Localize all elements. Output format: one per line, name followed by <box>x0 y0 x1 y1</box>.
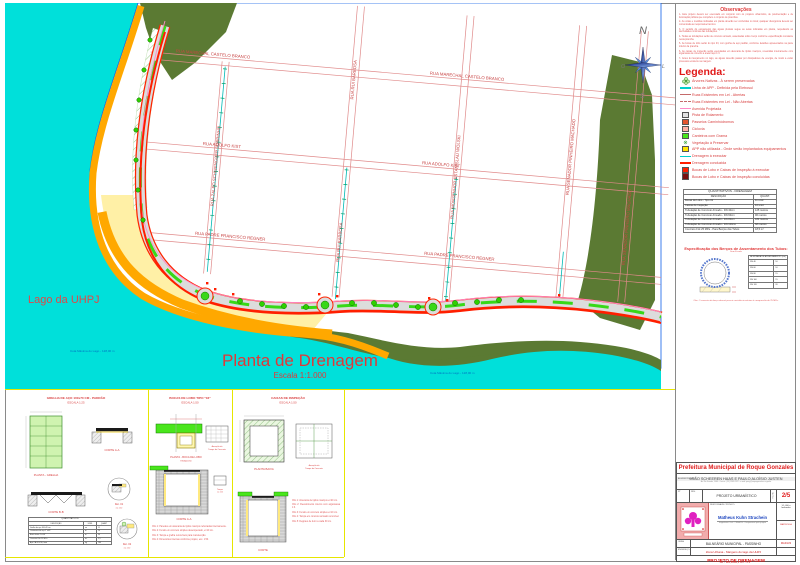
table-row: DN 12020 <box>749 283 788 289</box>
caixa-armacao-label1: Armação da <box>309 464 321 467</box>
legend-item: Linha de APP - Definida pela Eletrosul <box>679 85 793 92</box>
grelha-det1-esc: esc 1:10 <box>116 508 122 510</box>
caixa-armacao-drawing <box>296 424 332 458</box>
legend-label: Vegetação à Preservar <box>692 141 729 145</box>
bike-lane-swatch <box>682 126 688 132</box>
table-cell: Aço CA-50 Ø 8,0 mm <box>29 541 84 545</box>
caixa-plan-label: PLANTA BAIXA <box>254 467 274 471</box>
table-cell: 20 <box>774 283 788 289</box>
grass-swatch <box>682 133 688 139</box>
boca-title: BOCAS DE LOBO TIPO "03" <box>169 396 211 400</box>
grelha-det1-drawing <box>108 478 130 500</box>
pipe-section-drawing <box>686 255 744 297</box>
water-label: Cota Máxima do Lago - 128,00 m <box>430 371 475 375</box>
drainage-execute-swatch <box>680 156 691 157</box>
drawing-sheet: RUA MARECHAL CASTELO BRANCO RUA MARECHAL… <box>0 0 800 565</box>
legend-section: Legenda: Árvores Nativas - À serem prese… <box>679 66 793 180</box>
scale-column: 1:1.000 e Indicadas MATRÍCULA <box>777 503 795 539</box>
legend-label: Drenagem à executar <box>692 154 727 158</box>
details-div-3 <box>344 389 345 557</box>
grelha-corte-a-label: CORTE A-A <box>104 448 119 452</box>
quantities-table: QUANTITATIVOS - DRENAGEM DESCRIÇÃO QUANT… <box>683 189 777 233</box>
municipality-title: Prefeitura Municipal de Roque Gonzales <box>677 463 795 474</box>
boca-tampa-esc: esc 1:20 <box>217 492 223 494</box>
compass-north-label: N <box>639 25 647 37</box>
note-item: 5- As bocas de lobo serão do tipo 03, co… <box>679 43 793 49</box>
municipal-logo <box>677 503 709 539</box>
boca-armacao-label1: Armação da <box>212 445 224 448</box>
legend-item: Bocas de Lobo e Caixas de Inspeção à exe… <box>679 166 793 173</box>
project-type-box: PROJETO URBANÍSTICO <box>703 490 771 502</box>
admin-label: ADMINISTRAÇÃO: <box>678 478 695 480</box>
grelha-corte-a-drawing <box>92 428 132 443</box>
boca-plan-drawing <box>156 414 202 452</box>
legend-item: Bocas de Lobo e Caixas de Inspeção concl… <box>679 173 793 180</box>
lake-label: Lago da UHPJ <box>28 294 100 306</box>
boca-plan-esc: ESCALA 1/50 <box>181 460 192 463</box>
grelha-corte-b-drawing <box>28 492 85 506</box>
legend-label: Árvores Nativas - À serem preservadas <box>692 79 755 83</box>
table-cell: Concreto Fck 25 MPa - Para Berços dos Tu… <box>684 228 754 233</box>
inlet-execute-swatch <box>682 167 688 173</box>
boca-notes-list: Obs 1: Paredes em alvenaria de tijolos m… <box>152 526 228 542</box>
legend-label: Drenagem conduzida <box>692 161 726 165</box>
detail-panel-caixa: CAIXAS DE INSPEÇÃO ESCALA 1:50 PLANTA BA… <box>232 389 344 557</box>
resp-name: Matheus Kuhn Strachein <box>709 515 776 520</box>
water-label: Cota Máxima do Lago - 128,00 m <box>70 349 115 353</box>
legend-item: APP não utilizada - Onde serão implantad… <box>679 146 793 153</box>
legend-label: Ruas Existentes em Lei - Não Abertas <box>692 100 753 104</box>
legend-item: Avenida Projetada <box>679 105 793 112</box>
grelha-plan-label: PLANTA - GRELHA <box>34 473 59 477</box>
boca-corte-label: CORTE A-A <box>176 517 191 521</box>
caixa-notes-list: Obs 1: Alvenaria de tijolos maciços e=20… <box>292 500 340 524</box>
grelha-table-wrap: QUANTITATIVOS DESCRIÇÃO UNID QUANT Grelh… <box>28 517 112 545</box>
boca-armacao-drawing <box>206 426 228 442</box>
endereco-label: ENDEREÇO: <box>678 549 690 551</box>
grelha-rows: Grelha de aço 100x70 cmun11Cantoneira de… <box>29 526 112 545</box>
legend-item: Pista de Rolamento <box>679 112 793 119</box>
table-cell: 18,5 m³ <box>754 228 777 233</box>
obra-value: BALNEÁRIO MUNICIPAL - PASSINHO <box>691 542 776 546</box>
note-item: Obs 2: Revestimento interno com argamass… <box>292 504 340 510</box>
ref-box: Nº <box>677 490 690 502</box>
caixa-notes: Obs 1: Alvenaria de tijolos maciços e=20… <box>292 500 340 525</box>
drainage-map: RUA MARECHAL CASTELO BRANCO RUA MARECHAL… <box>5 3 675 389</box>
grelha-plan-drawing <box>26 412 62 468</box>
paper-size-label: A0 - 118,9x84,1 cm - 1:1 <box>676 560 794 564</box>
tree-icon <box>679 77 692 85</box>
table-row: Aço CA-50 Ø 8,0 mmkg180 <box>29 541 112 545</box>
map-subtitle: Escala 1:1.000 <box>274 371 327 380</box>
responsible-box: RESPONSÁVEL TÉCNICO: Matheus Kuhn Strach… <box>709 503 777 539</box>
bedding-subtitle: Sem Escala <box>678 251 794 253</box>
bedding-rows: DN 4010DN 6010DN 8015DN 10015DN 12020 <box>749 260 788 289</box>
legend-label: Bocas de Lobo e Caixas de Inspeção concl… <box>692 175 770 179</box>
note-item: Obs 4: Dimensões internas conforme proje… <box>152 539 228 542</box>
table-cell: kg <box>84 541 97 545</box>
grelha-det2-esc: esc 1:10 <box>124 548 130 550</box>
table-row: Concreto Fck 25 MPa - Para Berços dos Tu… <box>684 228 777 233</box>
endereco-value: Zona Urbana - Margens do lago da UHPJ <box>691 550 776 554</box>
legend-item: Ruas Existentes em Lei - Abertas <box>679 92 793 99</box>
caixa-scale: ESCALA 1:50 <box>279 401 297 405</box>
note-item: 2- As cotas e medidas indicadas em plant… <box>679 21 793 27</box>
note-item: Obs 1: Alvenaria de tijolos maciços e=20… <box>292 500 340 503</box>
grelha-corte-b-label: CORTE B-B <box>48 510 63 514</box>
caixa-title: CAIXAS DE INSPEÇÃO <box>271 395 305 400</box>
sheet-number-box: 2/5 <box>777 490 795 502</box>
note-item: Obs 5: Degraus de ferro a cada 30 cm. <box>292 521 340 524</box>
legend-label: Bocas de Lobo e Caixas de Inspeção à exe… <box>692 168 769 172</box>
resp-info: Engenheiro Civil - CREA/RS - Responsável… <box>709 522 776 524</box>
boca-plan-label: PLANTA - BOCA DE LOBO <box>170 455 202 459</box>
roadway-swatch <box>682 112 688 118</box>
observations-section: Observações 1- Este projeto deverá ser e… <box>679 7 793 65</box>
observations-title: Observações <box>679 7 793 13</box>
legend-item: Drenagem conduzida <box>679 160 793 167</box>
boca-armacao-label2: Tampa de Concreto <box>208 448 226 451</box>
legend-label: Pista de Rolamento <box>692 113 723 117</box>
obra-label: OBRA: <box>678 541 684 543</box>
note-item: Obs 4: Tampa em concreto armado removíve… <box>292 516 340 519</box>
legend-item: Drenagem à executar <box>679 153 793 160</box>
boca-scale: ESCALA 1:50 <box>181 401 199 405</box>
compass-star <box>625 47 661 83</box>
bedding-section: Especificação dos Berços de Assentamento… <box>678 246 794 302</box>
avenue-swatch <box>680 108 691 110</box>
legend-label: Avenida Projetada <box>692 107 721 111</box>
app-unused-swatch <box>682 146 688 152</box>
folha-box: FOLHA <box>771 490 777 502</box>
app-line-swatch <box>680 87 691 89</box>
quantities-rows: Bocas de Lobo - Tipo 0311 unidCaixas de … <box>684 199 777 232</box>
table-cell: DN 120 <box>749 283 774 289</box>
table-cell: 180 <box>97 541 112 545</box>
compass-east-label: L <box>662 64 665 70</box>
compass-west-label: O <box>621 64 626 70</box>
legend-label: APP não utilizada - Onde serão implantad… <box>692 147 786 151</box>
resp-label: RESPONSÁVEL TÉCNICO: <box>710 504 735 506</box>
legend-item: Árvores Nativas - À serem preservadas <box>679 78 793 85</box>
grelha-det2-drawing <box>117 519 137 539</box>
caixa-corte-label: CORTE <box>258 548 268 552</box>
quantities-section: QUANTITATIVOS - DRENAGEM DESCRIÇÃO QUANT… <box>683 189 777 233</box>
grelha-det2-label: Det. 02 <box>123 542 132 546</box>
caixa-armacao-label2: Tampa de Concreto <box>305 467 323 470</box>
open-street-swatch <box>680 94 691 95</box>
caixa-plan-drawing <box>240 416 284 462</box>
inlet-done-swatch <box>682 173 688 179</box>
rev-box: REV. <box>690 490 703 502</box>
details-bottom-line <box>5 557 344 558</box>
boca-corte-drawing <box>150 466 208 514</box>
legend-label: Canteiros com Grama <box>692 134 727 138</box>
note-item: 1- Este projeto deverá ser executado em … <box>679 14 793 20</box>
walkway-swatch <box>682 119 688 125</box>
boca-notes: Obs 1: Paredes em alvenaria de tijolos m… <box>152 526 228 544</box>
title-block: Prefeitura Municipal de Roque Gonzales A… <box>676 462 796 562</box>
legend-item: Canteiros com Grama <box>679 132 793 139</box>
legend-label: Ciclovia <box>692 127 705 131</box>
note-item: 3- O sentido do escoamento das águas plu… <box>679 29 793 35</box>
matricula-box: MATRÍCULA <box>777 521 795 539</box>
legend-item: ⊗ Vegetação à Preservar <box>679 139 793 146</box>
note-item: 4- Todas as tubulações serão de concreto… <box>679 36 793 42</box>
unopened-street-swatch <box>680 101 691 102</box>
legend-label: Passeios Caminhódromos <box>692 120 734 124</box>
note-item: Obs 3: Fundo em concreto simples e=10 cm… <box>292 512 340 515</box>
legend-item: Ruas Existentes em Lei - Não Abertas <box>679 98 793 105</box>
caixa-corte-drawing <box>238 492 288 542</box>
boca-tampa-drawing <box>214 476 226 485</box>
note-item: 7- Antes do lançamento no lago, as águas… <box>679 58 793 64</box>
scale-box: 1:1.000 e Indicadas <box>777 503 795 521</box>
grelha-title: GRELHA DE AÇO 100x70 CM - PADRÃO <box>47 395 106 400</box>
grelha-table: QUANTITATIVOS DESCRIÇÃO UNID QUANT Grelh… <box>28 517 112 545</box>
admin-contact: Av. Rio Grande, 1060 - Centro - (55) 358… <box>677 481 795 483</box>
bedding-table: ALMOFADA DE ASSENTAMENTO (cm) DN 4010DN … <box>748 255 788 289</box>
legend-label: Ruas Existentes em Lei - Abertas <box>692 93 745 97</box>
legend-item: Passeios Caminhódromos <box>679 119 793 126</box>
compass-south-label: S <box>640 93 645 100</box>
date-box: MAIO/23 <box>777 542 795 545</box>
preserved-vegetation-icon: ⊗ <box>679 140 692 146</box>
note-item: 6- As caixas de inspeção serão executada… <box>679 51 793 57</box>
compass-rose: N O L S <box>618 22 668 104</box>
note-item: Obs 2: Fundo em concreto simples desempe… <box>152 530 228 533</box>
legend-label: Linha de APP - Definida pela Eletrosul <box>692 86 753 90</box>
bedding-note: Obs: O concreto do berço deverá possuir … <box>678 300 794 302</box>
note-item: Obs 1: Paredes em alvenaria de tijolos m… <box>152 526 228 529</box>
note-item: Obs 3: Tampa e grelha removíveis para ma… <box>152 535 228 538</box>
observations-list: 1- Este projeto deverá ser executado em … <box>679 14 793 64</box>
map-title: Planta de Drenagem <box>222 351 378 370</box>
boca-tampa-label: Tampa <box>217 489 224 491</box>
legend-item: Ciclovia <box>679 126 793 133</box>
grelha-det1-label: Det. 01 <box>115 502 124 506</box>
legend-title: Legenda: <box>679 66 793 78</box>
drainage-done-swatch <box>680 162 691 163</box>
grelha-scale: ESCALA 1:25 <box>67 401 85 405</box>
